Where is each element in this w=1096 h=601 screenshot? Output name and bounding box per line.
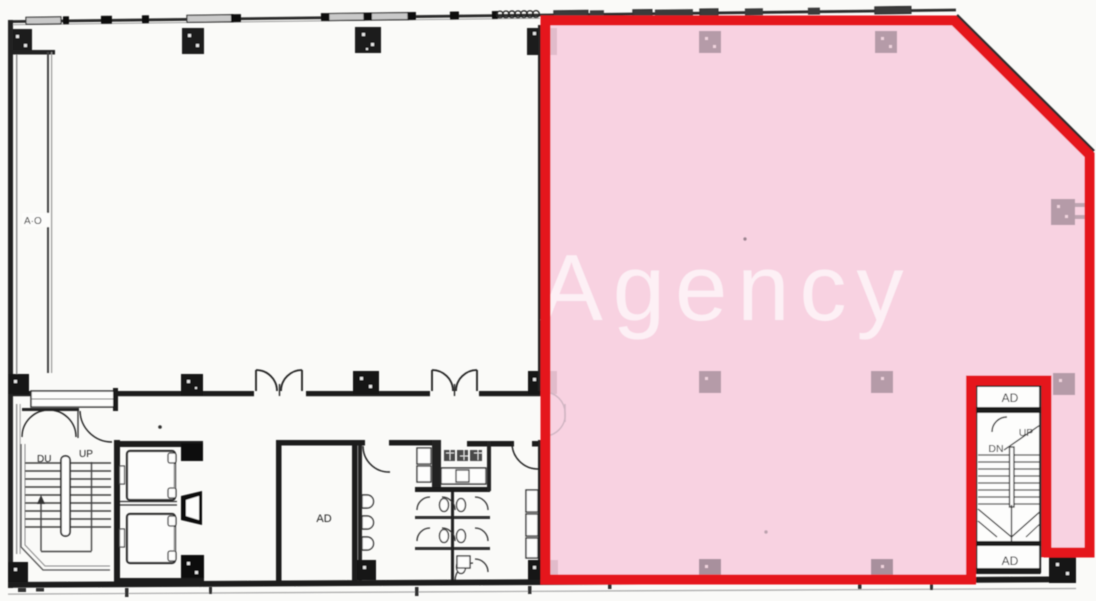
svg-text:DU: DU [37,454,51,465]
svg-text:AD: AD [1002,554,1019,568]
svg-text:AD: AD [316,513,331,525]
svg-text:Agency: Agency [540,235,914,340]
svg-text:UP: UP [79,449,93,460]
svg-text:DN: DN [988,443,1003,455]
svg-text:AD: AD [1002,391,1019,405]
svg-text:A·O: A·O [24,216,42,227]
svg-text:UP: UP [1019,427,1034,439]
